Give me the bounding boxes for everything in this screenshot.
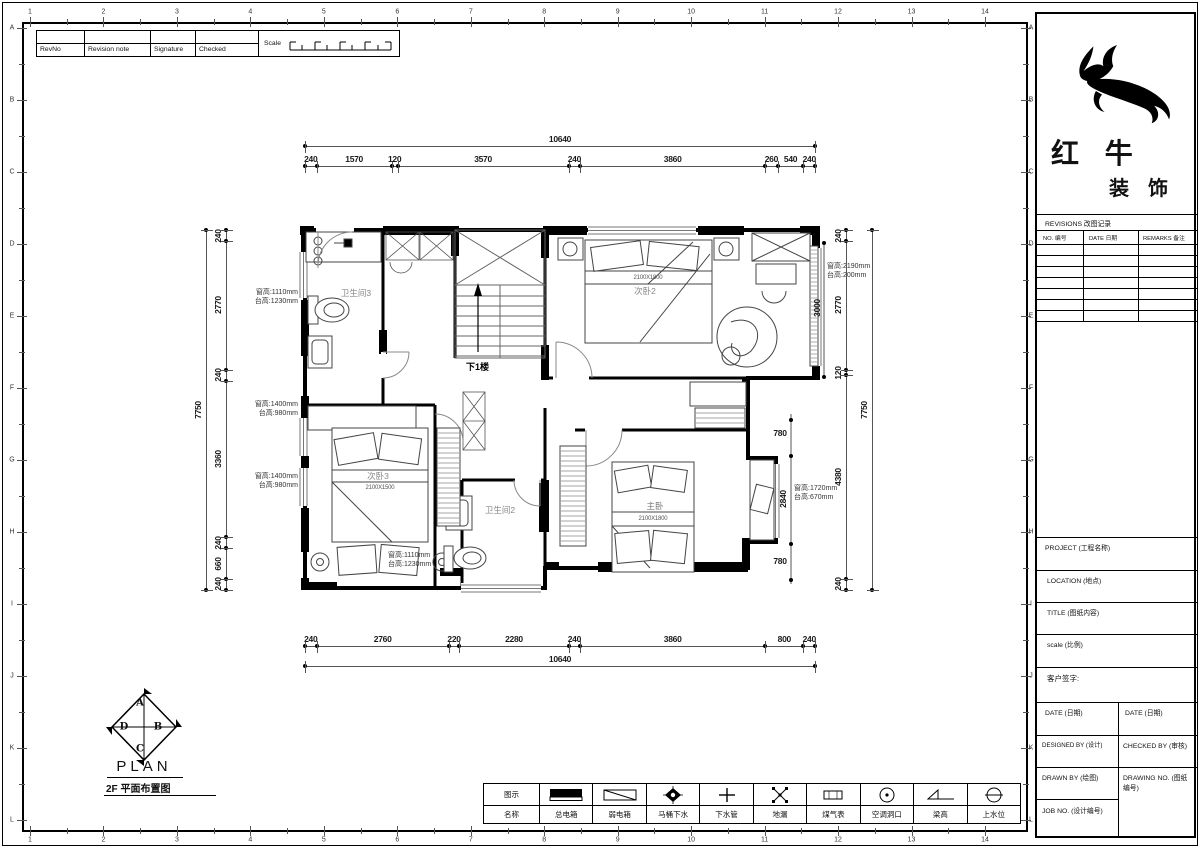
grid-row-label: K — [10, 745, 15, 752]
dim-label: 540 — [784, 154, 797, 164]
revision-row-line — [1037, 277, 1198, 278]
compass-letter-c: C — [136, 744, 144, 755]
dim-label: 240 — [568, 634, 581, 644]
grid-tick-minor — [728, 19, 729, 25]
revisions-title: REVISIONS 改图记录 — [1045, 218, 1111, 228]
grid-tick-minor — [1023, 280, 1029, 281]
drawn-by-label: DRAWN BY (绘图) — [1042, 772, 1098, 782]
grid-tick-minor — [508, 828, 509, 834]
grid-tick-minor — [1023, 568, 1029, 569]
grid-tick — [397, 17, 398, 27]
grid-tick-minor — [287, 828, 288, 834]
dim-label: 240 — [304, 634, 317, 644]
dim-ext — [841, 590, 853, 591]
window-note-master-bay: 窗高:1720mm 台高:670mm — [794, 484, 852, 502]
grid-tick — [691, 17, 692, 27]
grid-col-label: 8 — [542, 9, 546, 16]
grid-tick-minor — [1023, 208, 1029, 209]
revision-row-line — [1037, 310, 1198, 311]
grid-tick — [838, 826, 839, 836]
dim-ext — [815, 141, 816, 153]
grid-col-label: 7 — [469, 9, 473, 16]
grid-tick — [1021, 28, 1031, 29]
job-no-label: JOB NO. (设计编号) — [1042, 805, 1103, 815]
dim-label: 3570 — [474, 154, 492, 164]
window-note-bed3-upper: 窗高:1400mm 台高:980mm — [240, 400, 298, 418]
dim-bay-top: 780 — [773, 428, 786, 438]
dim-line — [305, 646, 815, 647]
grid-tick-minor — [1023, 352, 1029, 353]
bed-size-master: 2100X1800 — [639, 516, 668, 522]
grid-tick-minor — [508, 19, 509, 25]
dim-line — [305, 146, 815, 147]
project-label: PROJECT (工程名称) — [1045, 542, 1110, 552]
grid-tick — [17, 172, 27, 173]
dim-label: 240 — [803, 154, 816, 164]
drain-pipe-symbol — [699, 783, 753, 806]
grid-tick-minor — [140, 828, 141, 834]
dim-ext — [201, 590, 213, 591]
grid-tick — [177, 826, 178, 836]
grid-tick-minor — [801, 828, 802, 834]
floor-drain-icon — [758, 786, 802, 804]
water-supply-icon — [972, 786, 1016, 804]
grid-col-label: 13 — [908, 837, 916, 844]
grid-tick — [103, 826, 104, 836]
grid-col-label: 12 — [834, 837, 842, 844]
dim-label: 800 — [778, 634, 791, 644]
grid-tick — [17, 100, 27, 101]
grid-tick-minor — [728, 828, 729, 834]
grid-col-label: 5 — [322, 9, 326, 16]
grid-tick — [30, 826, 31, 836]
grid-tick — [1021, 532, 1031, 533]
revision-row-line — [1037, 288, 1198, 289]
room-label-master: 主卧 — [646, 500, 663, 512]
legend-name: 总电箱 — [539, 805, 593, 824]
grid-tick-minor — [875, 828, 876, 834]
weak-electric-box-icon — [598, 786, 642, 804]
grid-col-label: 4 — [248, 9, 252, 16]
dim-label: 120 — [833, 366, 843, 379]
checked-by-label: CHECKED BY (审核) — [1123, 740, 1193, 750]
grid-row-label: B — [10, 97, 15, 104]
grid-col-label: 3 — [175, 837, 179, 844]
dim-ext — [815, 161, 816, 173]
grid-tick — [912, 826, 913, 836]
room-label-bed3: 次卧3 — [367, 470, 389, 482]
toilet-drain-symbol — [646, 783, 700, 806]
room-label-bath3: 卫生间3 — [341, 287, 371, 299]
grid-row-label: H — [9, 529, 14, 536]
grid-tick — [1021, 100, 1031, 101]
grid-tick-minor — [875, 19, 876, 25]
grid-tick — [985, 826, 986, 836]
grid-tick-minor — [581, 828, 582, 834]
grid-tick — [618, 17, 619, 27]
compass-letter-d: D — [120, 722, 129, 733]
grid-tick-minor — [19, 136, 25, 137]
grid-tick — [765, 826, 766, 836]
dim-line — [846, 230, 847, 590]
grid-tick — [544, 17, 545, 27]
grid-tick — [17, 820, 27, 821]
dim-bed2-inner: 3000 — [812, 299, 822, 317]
gas-meter-symbol — [806, 783, 860, 806]
grid-col-label: 2 — [102, 837, 106, 844]
grid-tick-minor — [1023, 424, 1029, 425]
grid-row-label: A — [10, 25, 15, 32]
revno-label: RevNo — [40, 46, 61, 53]
dim-line — [206, 230, 207, 590]
main-electric-box-icon — [544, 786, 588, 804]
grid-tick — [324, 826, 325, 836]
dim-ext — [398, 161, 399, 173]
dim-label: 3360 — [213, 450, 223, 468]
window-note-bath2: 窗高:1110mm 台高:1230mm — [388, 551, 446, 569]
date-left-label: DATE (日期) — [1045, 707, 1083, 717]
dim-label: 240 — [304, 154, 317, 164]
grid-col-label: 3 — [175, 9, 179, 16]
grid-tick-minor — [361, 19, 362, 25]
bed-size-bed3: 2100X1500 — [366, 485, 395, 491]
grid-tick-minor — [214, 828, 215, 834]
ac-hole-symbol — [860, 783, 914, 806]
dim-ext — [221, 548, 233, 549]
grid-col-label: 6 — [395, 9, 399, 16]
window-note-bath3: 窗高:1110mm 台高:1230mm — [240, 288, 298, 306]
title-block: 红 牛 装 饰 REVISIONS 改图记录 NO. 编号 DATE 日期 RE… — [1035, 12, 1196, 838]
grid-tick — [912, 17, 913, 27]
grid-tick — [103, 17, 104, 27]
dim-ext — [580, 161, 581, 173]
dim-label: 120 — [388, 154, 401, 164]
scale-bar — [288, 38, 393, 54]
company-logo-bull — [1055, 36, 1179, 136]
grid-col-label: 7 — [469, 837, 473, 844]
grid-tick — [324, 17, 325, 27]
legend-name: 下水管 — [699, 805, 753, 824]
grid-col-label: 6 — [395, 837, 399, 844]
scale-field-label: scale (比例) — [1047, 639, 1083, 649]
dim-ext — [778, 161, 779, 173]
dim-label: 1570 — [345, 154, 363, 164]
grid-tick-minor — [948, 19, 949, 25]
grid-tick-minor — [361, 828, 362, 834]
grid-col-label: 10 — [687, 837, 695, 844]
grid-col-label: 9 — [616, 837, 620, 844]
date-right-label: DATE (日期) — [1125, 707, 1163, 717]
dim-label: 7750 — [193, 401, 203, 419]
grid-col-label: 1 — [28, 837, 32, 844]
toilet-drain-icon — [651, 786, 695, 804]
grid-row-label: F — [10, 385, 14, 392]
dim-label: 4380 — [833, 468, 843, 486]
drawing-no-label: DRAWING NO. (图纸编号) — [1123, 772, 1193, 792]
dim-ext — [305, 141, 306, 153]
beam-height-icon — [918, 786, 962, 804]
grid-col-label: 10 — [687, 9, 695, 16]
dim-ext — [201, 230, 213, 231]
dim-label: 3860 — [664, 154, 682, 164]
grid-row-label: C — [9, 169, 14, 176]
dim-label: 240 — [803, 634, 816, 644]
grid-tick — [544, 826, 545, 836]
checked-label: Checked — [199, 46, 226, 53]
weak-electric-box-symbol — [592, 783, 646, 806]
grid-tick-minor — [19, 784, 25, 785]
grid-tick-minor — [1023, 496, 1029, 497]
grid-tick — [17, 244, 27, 245]
grid-tick-minor — [1023, 64, 1029, 65]
bed-size-bed2: 2100X1800 — [634, 275, 663, 281]
floor-drain-symbol — [753, 783, 807, 806]
grid-tick-minor — [434, 19, 435, 25]
grid-row-label: E — [10, 313, 15, 320]
grid-tick-minor — [1023, 712, 1029, 713]
grid-tick — [17, 604, 27, 605]
dim-ext — [815, 661, 816, 673]
water-supply-symbol — [967, 783, 1021, 806]
grid-tick — [1021, 460, 1031, 461]
dim-label: 7750 — [859, 401, 869, 419]
grid-tick-minor — [654, 828, 655, 834]
signature-label: Signature — [154, 46, 183, 53]
grid-tick-minor — [581, 19, 582, 25]
grid-tick — [1021, 316, 1031, 317]
rev-col-remarks: REMARKS 备注 — [1143, 233, 1185, 242]
rev-col-no: NO. 编号 — [1043, 233, 1067, 242]
legend-symbol-header: 图示 — [483, 783, 540, 806]
grid-tick — [618, 826, 619, 836]
grid-tick-minor — [434, 828, 435, 834]
dim-label: 660 — [213, 557, 223, 570]
dim-label: 2770 — [213, 297, 223, 315]
dim-bay-bottom: 780 — [773, 556, 786, 566]
title-label: TITLE (图纸内容) — [1047, 607, 1099, 617]
grid-tick-minor — [19, 568, 25, 569]
drain-pipe-icon — [705, 786, 749, 804]
grid-tick — [17, 532, 27, 533]
dim-label: 2770 — [833, 297, 843, 315]
beam-height-symbol — [913, 783, 967, 806]
main-electric-box-symbol — [539, 783, 593, 806]
legend-name-header: 名称 — [483, 805, 540, 824]
grid-tick — [838, 17, 839, 27]
dim-bay-middle: 2840 — [778, 490, 788, 508]
grid-tick — [691, 826, 692, 836]
grid-col-label: 11 — [761, 837, 768, 844]
grid-col-label: 5 — [322, 837, 326, 844]
grid-row-label: G — [9, 457, 14, 464]
revision-row-line — [1037, 299, 1198, 300]
compass-letter-b: B — [154, 722, 162, 733]
legend-name: 煤气表 — [806, 805, 860, 824]
dim-ext — [221, 241, 233, 242]
dim-label: 240 — [568, 154, 581, 164]
grid-tick — [17, 460, 27, 461]
grid-tick-minor — [801, 19, 802, 25]
legend-name: 上水位 — [967, 805, 1021, 824]
legend-name: 空调洞口 — [860, 805, 914, 824]
grid-col-label: 14 — [981, 837, 989, 844]
grid-tick-minor — [19, 64, 25, 65]
grid-tick — [1021, 172, 1031, 173]
drawing-sheet: { "sheet": { "grid_cols": ["1","2","3","… — [0, 0, 1200, 849]
grid-tick — [177, 17, 178, 27]
client-signature-label: 客户签字: — [1047, 673, 1079, 684]
location-label: LOCATION (地点) — [1047, 575, 1101, 585]
plan-title: PLAN — [116, 758, 171, 775]
grid-col-label: 14 — [981, 9, 989, 16]
dim-line — [872, 230, 873, 590]
rev-col-date: DATE 日期 — [1089, 233, 1117, 242]
grid-tick — [250, 17, 251, 27]
dim-label: 260 — [765, 154, 778, 164]
grid-tick — [17, 748, 27, 749]
grid-tick — [17, 676, 27, 677]
compass-letter-a: A — [136, 698, 144, 709]
grid-tick — [17, 316, 27, 317]
gas-meter-icon — [811, 786, 855, 804]
revision-note-label: Revision note — [88, 46, 129, 53]
grid-tick-minor — [19, 424, 25, 425]
grid-tick — [1021, 676, 1031, 677]
dim-label: 2760 — [374, 634, 392, 644]
grid-tick-minor — [1023, 640, 1029, 641]
grid-tick — [471, 17, 472, 27]
grid-tick — [765, 17, 766, 27]
dim-line — [305, 166, 815, 167]
grid-tick-minor — [287, 19, 288, 25]
grid-tick — [397, 826, 398, 836]
grid-tick — [1021, 748, 1031, 749]
room-label-bath2: 卫生间2 — [485, 504, 515, 516]
dim-ext — [867, 230, 879, 231]
dim-ext — [317, 161, 318, 173]
dim-ext — [765, 641, 766, 653]
grid-row-label: I — [11, 601, 13, 608]
grid-row-label: J — [10, 673, 14, 680]
grid-row-label: D — [9, 241, 14, 248]
dim-line — [305, 666, 815, 667]
stairs-label: 下1楼 — [466, 360, 489, 373]
grid-tick-minor — [19, 712, 25, 713]
legend-table: 图示名称总电箱弱电箱马桶下水下水管地漏煤气表空调洞口梁高上水位 — [483, 783, 1020, 823]
grid-tick-minor — [214, 19, 215, 25]
legend-name: 马桶下水 — [646, 805, 700, 824]
grid-col-label: 8 — [542, 837, 546, 844]
designed-by-label: DESIGNED BY (设计) — [1042, 740, 1102, 749]
dim-label: 10640 — [549, 134, 571, 144]
grid-tick — [17, 28, 27, 29]
window-note-bed3-lower: 窗高:1400mm 台高:980mm — [240, 472, 298, 490]
dim-ext — [841, 375, 853, 376]
revision-row-line — [1037, 266, 1198, 267]
legend-name: 梁高 — [913, 805, 967, 824]
grid-tick-minor — [19, 352, 25, 353]
dim-ext — [221, 590, 233, 591]
dim-ext — [580, 641, 581, 653]
grid-tick-minor — [67, 828, 68, 834]
grid-col-label: 1 — [28, 9, 32, 16]
company-name-suffix: 装 饰 — [1109, 172, 1174, 201]
grid-tick-minor — [1023, 784, 1029, 785]
dim-ext — [841, 241, 853, 242]
legend-name: 地漏 — [753, 805, 807, 824]
dim-ext — [459, 641, 460, 653]
window-note-bed2: 窗高:2190mm 台高:200mm — [827, 262, 887, 280]
legend-name: 弱电箱 — [592, 805, 646, 824]
dim-ext — [305, 661, 306, 673]
grid-tick-minor — [67, 19, 68, 25]
grid-tick-minor — [1023, 136, 1029, 137]
grid-col-label: 4 — [248, 837, 252, 844]
grid-tick-minor — [948, 828, 949, 834]
grid-col-label: 13 — [908, 9, 916, 16]
ac-hole-icon — [865, 786, 909, 804]
dim-label: 10640 — [549, 654, 571, 664]
company-name: 红 牛 — [1051, 132, 1141, 172]
grid-tick-minor — [140, 19, 141, 25]
grid-tick — [17, 388, 27, 389]
grid-tick — [1021, 820, 1031, 821]
grid-tick-minor — [19, 640, 25, 641]
room-label-bed2: 次卧2 — [634, 285, 656, 297]
grid-tick-minor — [654, 19, 655, 25]
grid-tick — [30, 17, 31, 27]
grid-tick — [1021, 604, 1031, 605]
scale-label: Scale — [264, 40, 281, 47]
grid-tick — [250, 826, 251, 836]
grid-tick — [1021, 244, 1031, 245]
grid-col-label: 11 — [761, 9, 768, 16]
grid-tick — [1021, 388, 1031, 389]
grid-tick-minor — [19, 496, 25, 497]
grid-col-label: 12 — [834, 9, 842, 16]
dim-ext — [867, 590, 879, 591]
grid-col-label: 2 — [102, 9, 106, 16]
dim-label: 2280 — [505, 634, 523, 644]
dim-ext — [317, 641, 318, 653]
plan-subtitle: 2F 平面布置图 — [106, 780, 170, 795]
revision-row-line — [1037, 244, 1198, 245]
dim-ext — [221, 381, 233, 382]
grid-tick — [985, 17, 986, 27]
grid-row-label: L — [10, 817, 14, 824]
grid-tick-minor — [19, 208, 25, 209]
dim-label: 3860 — [664, 634, 682, 644]
grid-tick — [471, 826, 472, 836]
grid-col-label: 9 — [616, 9, 620, 16]
revision-row-line — [1037, 255, 1198, 256]
grid-tick-minor — [19, 280, 25, 281]
dim-ext — [815, 641, 816, 653]
